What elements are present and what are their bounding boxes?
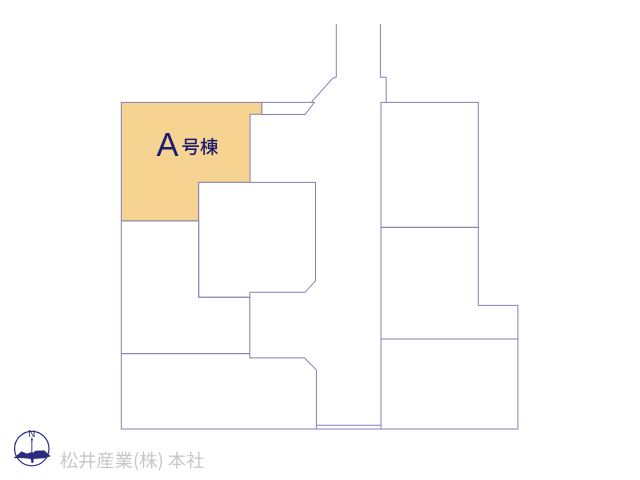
svg-text:A: A <box>157 126 179 163</box>
